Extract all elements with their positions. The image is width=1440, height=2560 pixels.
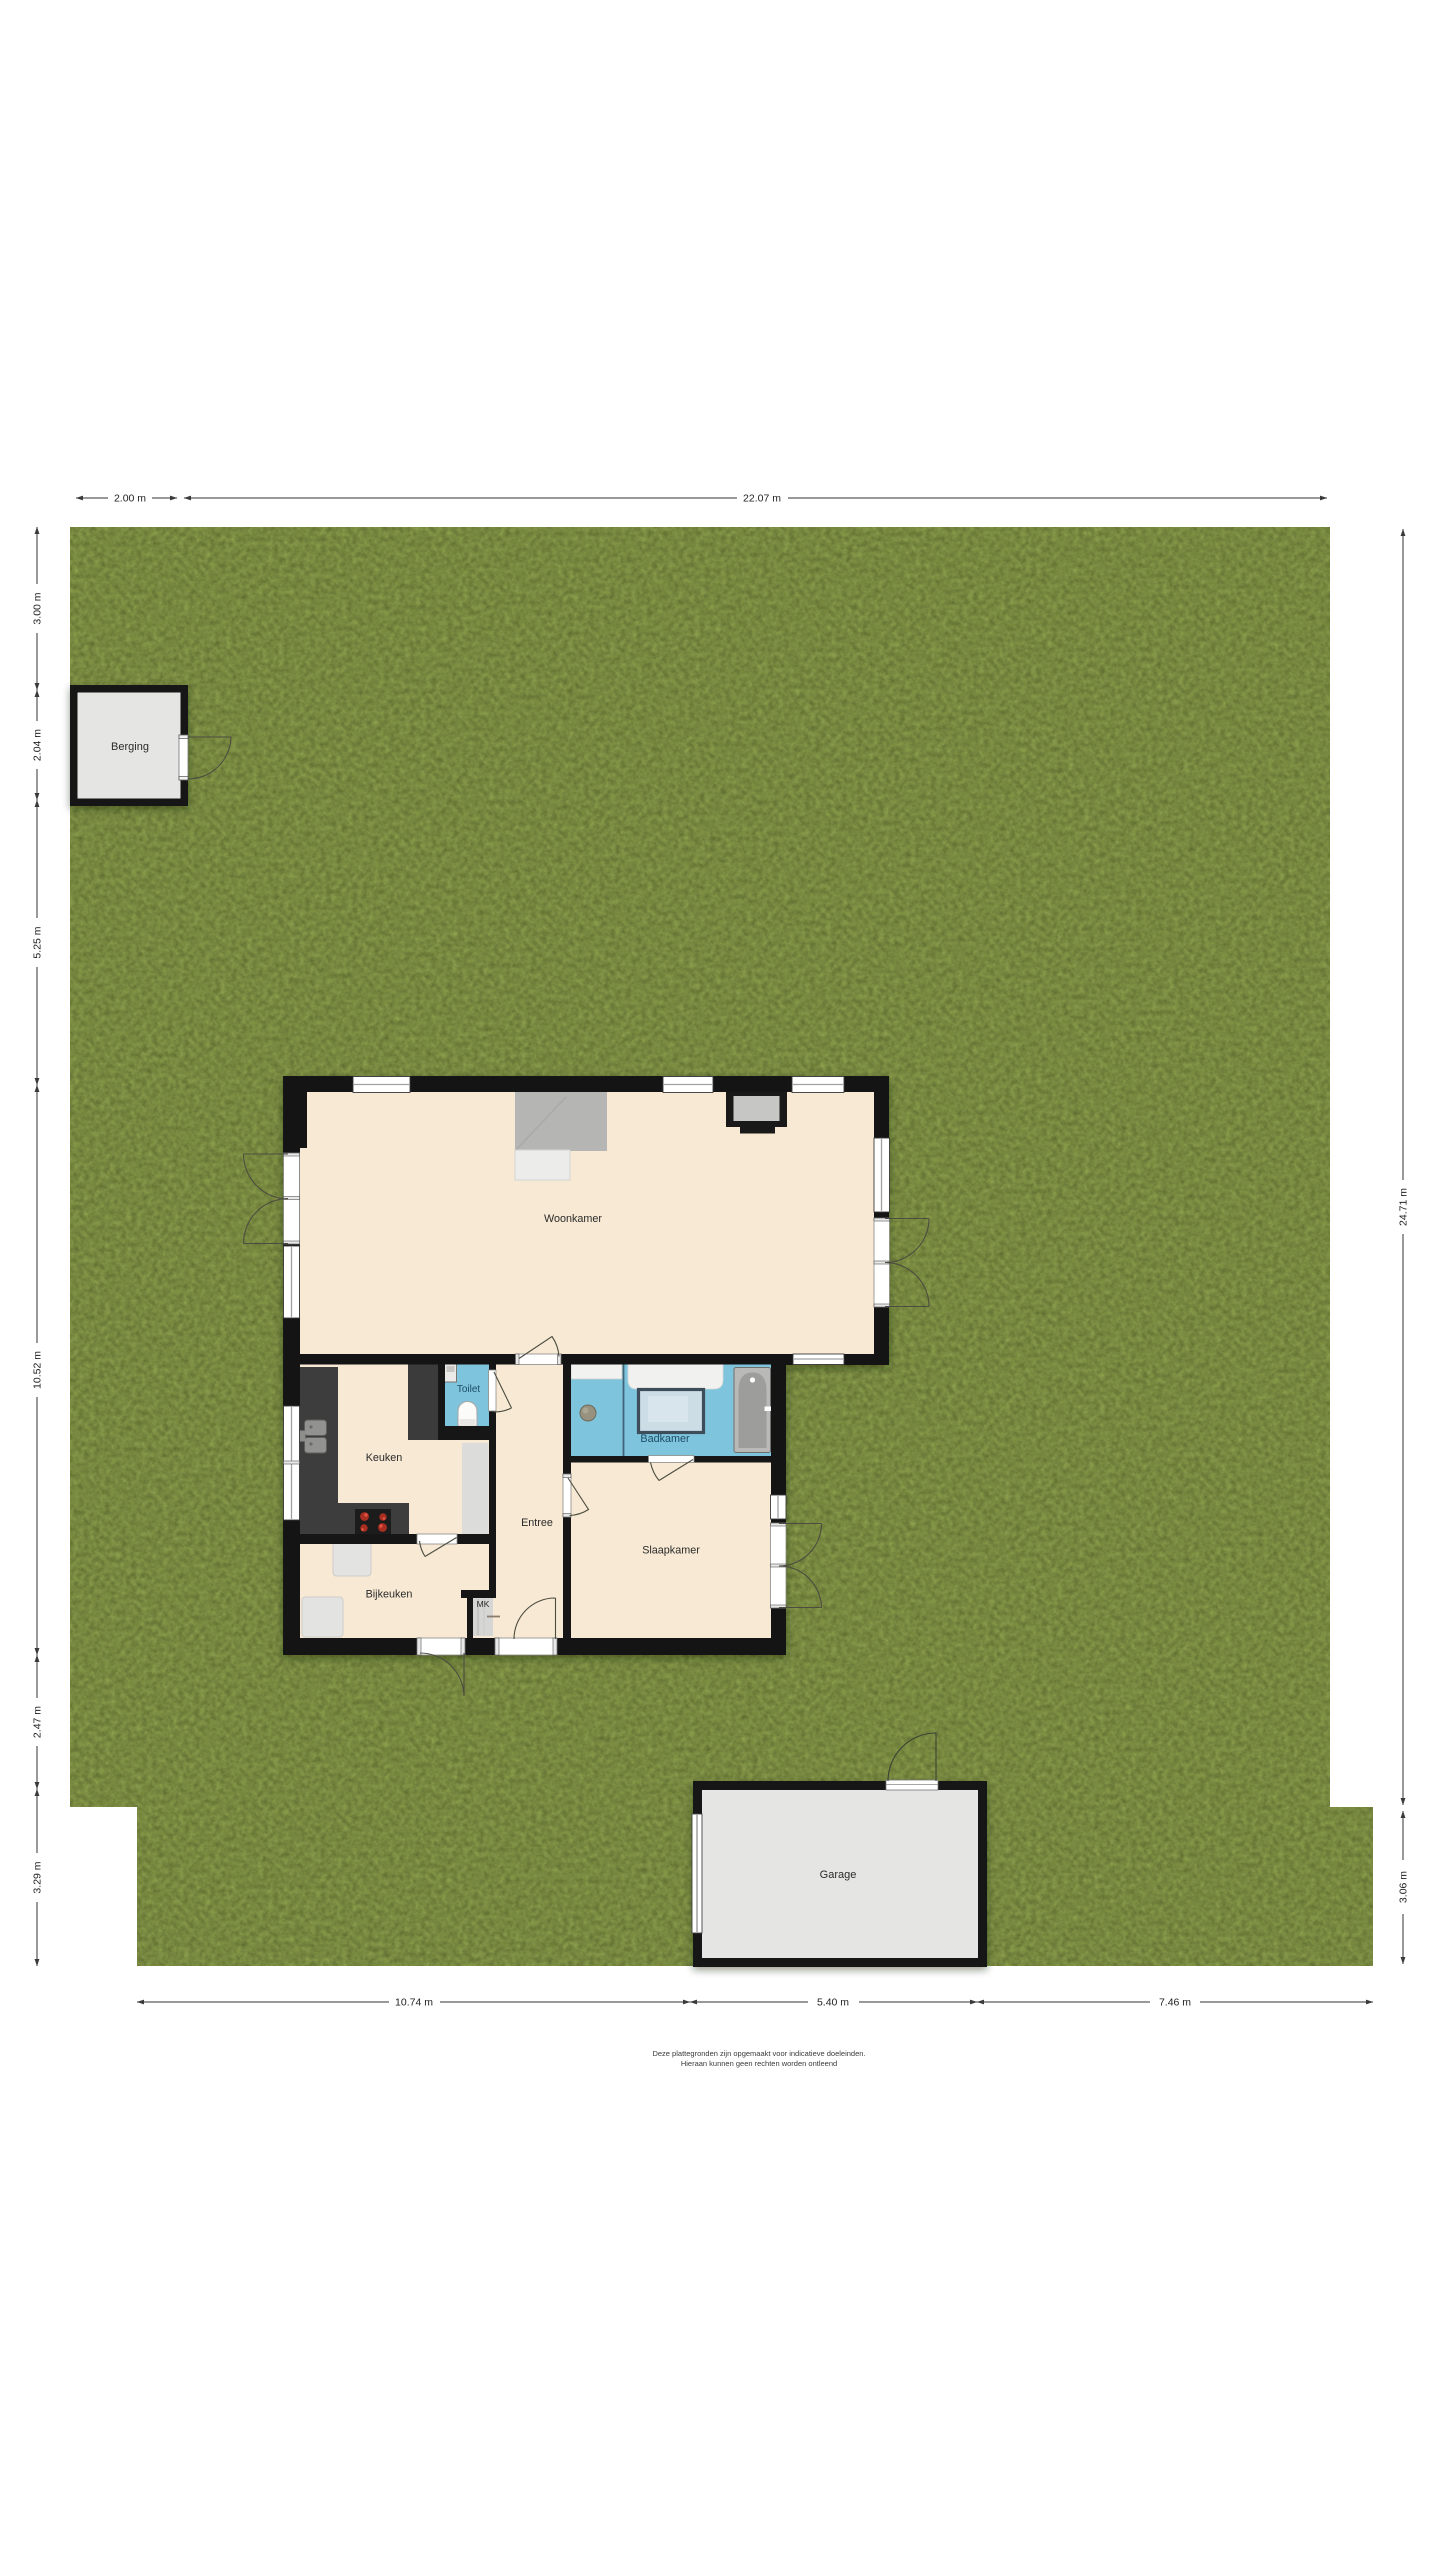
svg-text:Badkamer: Badkamer (640, 1433, 690, 1445)
svg-text:Keuken: Keuken (366, 1452, 403, 1464)
svg-text:Slaapkamer: Slaapkamer (642, 1545, 700, 1557)
svg-text:Woonkamer: Woonkamer (544, 1213, 602, 1225)
svg-text:Toilet: Toilet (457, 1384, 481, 1395)
svg-text:5.25 m: 5.25 m (32, 926, 44, 958)
svg-text:2.47 m: 2.47 m (32, 1706, 44, 1738)
svg-text:2.04 m: 2.04 m (32, 729, 44, 761)
svg-text:Hieraan kunnen geen rechten wo: Hieraan kunnen geen rechten worden ontle… (681, 2059, 837, 2068)
svg-text:3.00 m: 3.00 m (32, 592, 44, 624)
svg-text:10.52 m: 10.52 m (32, 1351, 44, 1389)
svg-text:Berging: Berging (111, 741, 149, 753)
svg-text:Bijkeuken: Bijkeuken (366, 1589, 413, 1601)
svg-text:2.00 m: 2.00 m (114, 493, 146, 505)
svg-text:3.29 m: 3.29 m (32, 1861, 44, 1893)
svg-text:5.40 m: 5.40 m (817, 1997, 849, 2009)
svg-text:22.07 m: 22.07 m (743, 493, 781, 505)
svg-text:Garage: Garage (820, 1869, 857, 1881)
svg-text:MK: MK (477, 1599, 490, 1609)
svg-text:3.06 m: 3.06 m (1398, 1871, 1410, 1903)
svg-text:Entree: Entree (521, 1517, 553, 1529)
svg-text:Deze plattegronden zijn opgema: Deze plattegronden zijn opgemaakt voor i… (652, 2049, 865, 2058)
svg-text:7.46 m: 7.46 m (1159, 1997, 1191, 2009)
svg-text:10.74 m: 10.74 m (395, 1997, 433, 2009)
svg-text:24.71 m: 24.71 m (1398, 1188, 1410, 1226)
